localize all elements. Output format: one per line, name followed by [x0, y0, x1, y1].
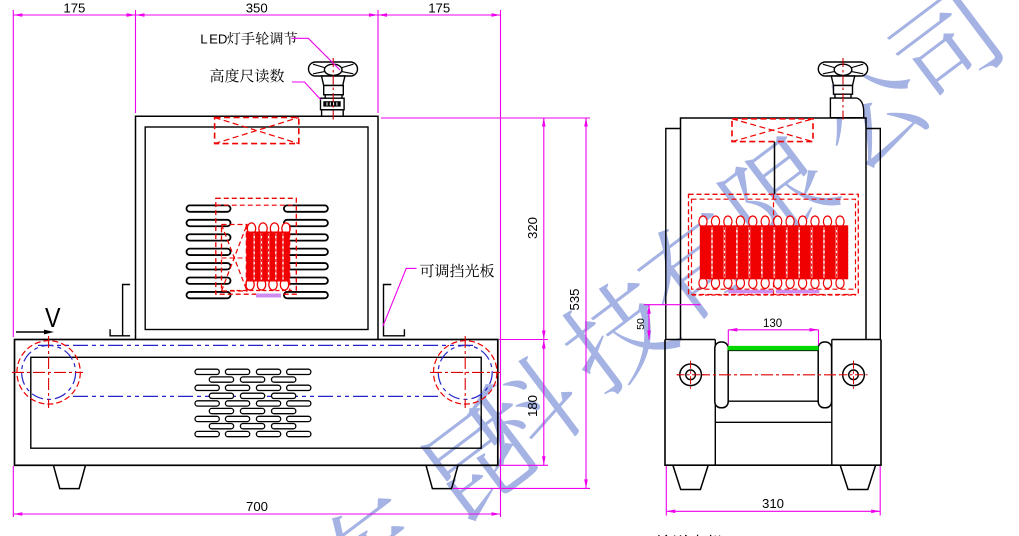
svg-text:E: E [209, 32, 218, 47]
svg-text:L: L [200, 32, 207, 47]
svg-text:310: 310 [762, 496, 784, 511]
svg-text:175: 175 [63, 1, 85, 16]
svg-text:700: 700 [246, 499, 268, 514]
svg-text:V: V [45, 302, 61, 333]
svg-text:175: 175 [428, 1, 450, 16]
svg-text:320: 320 [525, 217, 540, 239]
svg-text:535: 535 [567, 288, 582, 310]
svg-text:180: 180 [525, 395, 540, 417]
svg-text:D: D [218, 32, 228, 47]
svg-text:130: 130 [763, 318, 782, 330]
svg-text:50: 50 [635, 318, 647, 330]
svg-text:350: 350 [246, 1, 268, 16]
